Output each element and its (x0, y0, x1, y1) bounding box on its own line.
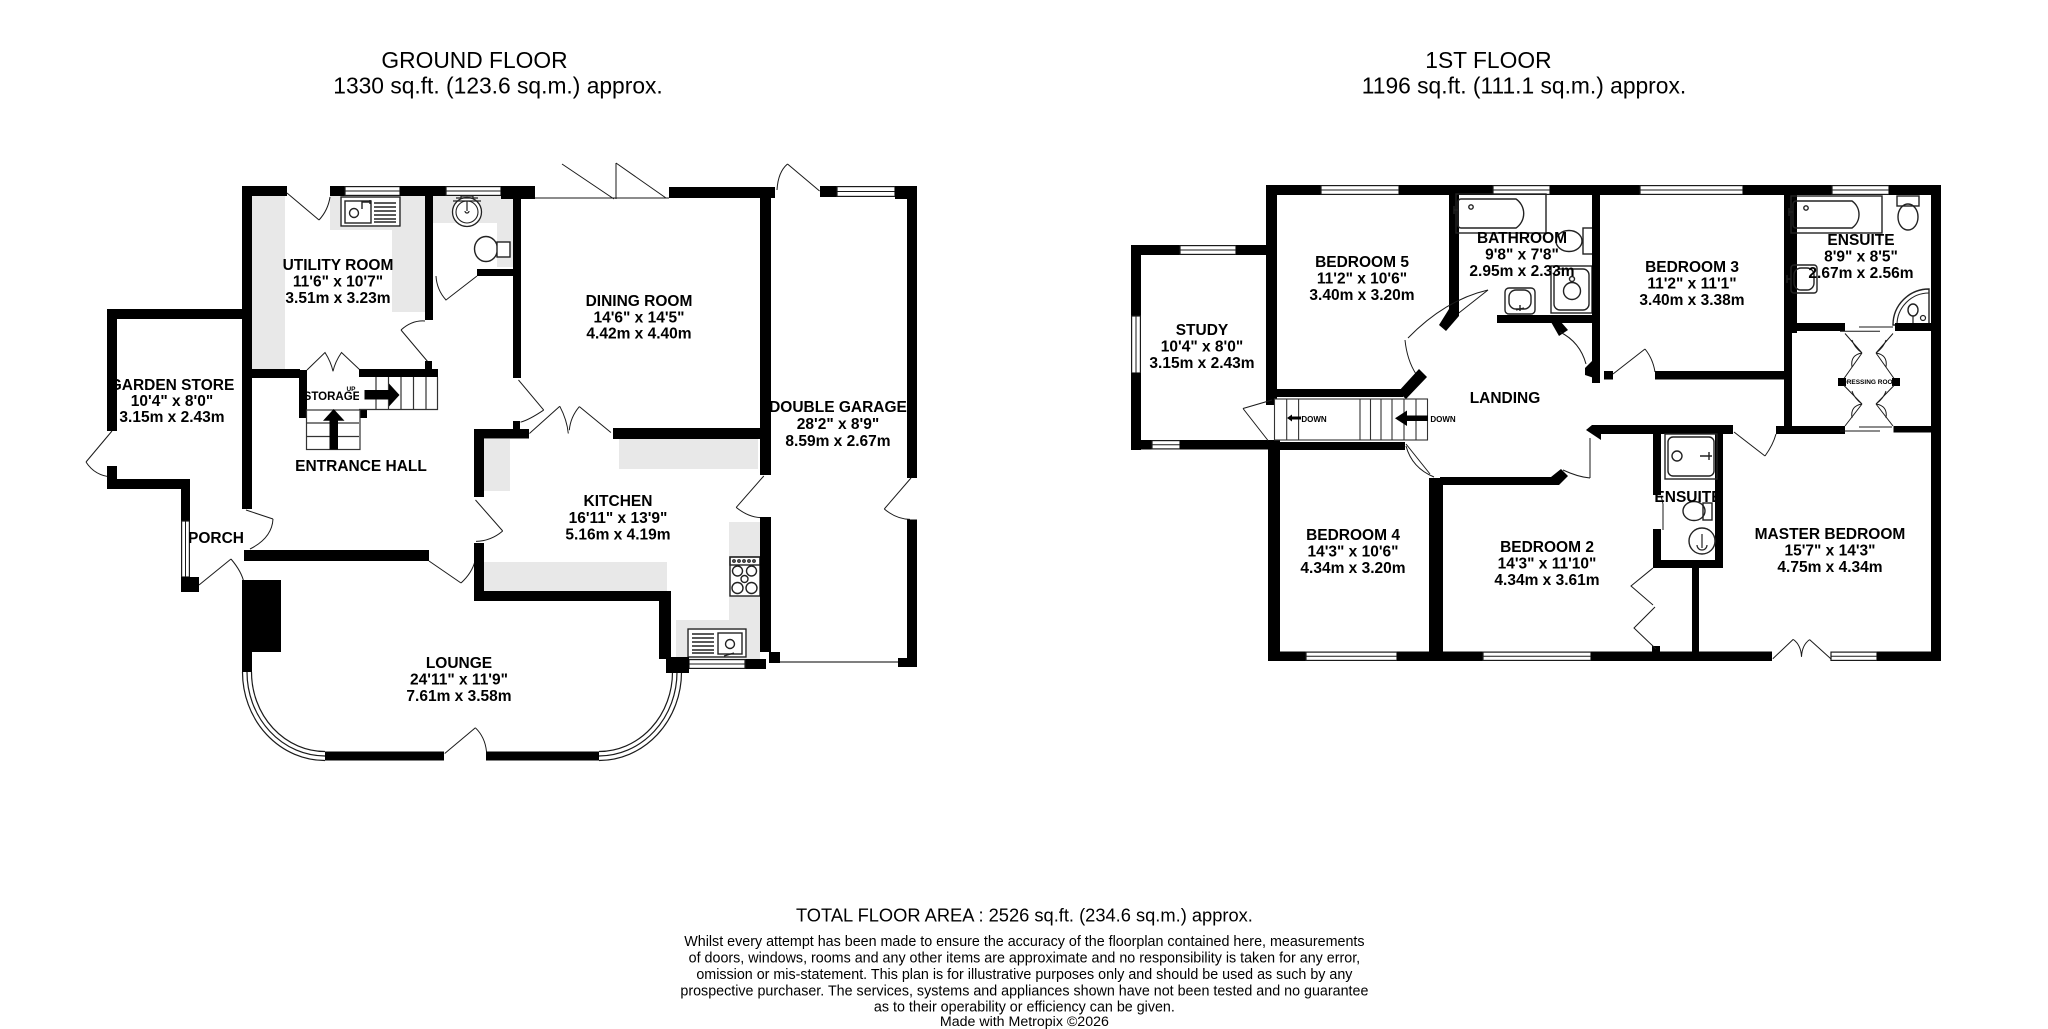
svg-text:BATHROOM: BATHROOM (1477, 230, 1567, 247)
svg-text:of doors, windows, rooms and a: of doors, windows, rooms and any other i… (689, 951, 1361, 967)
svg-text:4.34m x 3.20m: 4.34m x 3.20m (1300, 560, 1405, 577)
svg-text:3.40m x 3.20m: 3.40m x 3.20m (1309, 287, 1414, 304)
svg-text:10'4" x 8'0": 10'4" x 8'0" (131, 393, 213, 410)
svg-text:KITCHEN: KITCHEN (584, 493, 653, 510)
svg-text:3.15m x 2.43m: 3.15m x 2.43m (119, 409, 224, 426)
svg-text:8.59m x 2.67m: 8.59m x 2.67m (785, 433, 890, 450)
svg-text:GARDEN STORE: GARDEN STORE (110, 377, 235, 394)
svg-text:4.75m x 4.34m: 4.75m x 4.34m (1777, 559, 1882, 576)
svg-text:4.34m x 3.61m: 4.34m x 3.61m (1494, 572, 1599, 589)
svg-text:ENTRANCE HALL: ENTRANCE HALL (295, 458, 427, 475)
svg-text:prospective purchaser. The ser: prospective purchaser. The services, sys… (680, 983, 1368, 999)
svg-text:16'11" x 13'9": 16'11" x 13'9" (569, 510, 668, 527)
svg-text:14'3" x 11'10": 14'3" x 11'10" (1498, 556, 1597, 573)
svg-text:11'2" x 10'6": 11'2" x 10'6" (1317, 271, 1407, 288)
svg-text:DRESSING ROOM: DRESSING ROOM (1842, 379, 1898, 386)
svg-text:8'9" x 8'5": 8'9" x 8'5" (1824, 249, 1898, 266)
svg-text:DOWN: DOWN (1301, 415, 1327, 424)
svg-text:ENSUITE: ENSUITE (1654, 489, 1721, 506)
svg-text:14'3" x 10'6": 14'3" x 10'6" (1307, 544, 1398, 561)
svg-text:ENSUITE: ENSUITE (1827, 232, 1894, 249)
svg-text:28'2" x 8'9": 28'2" x 8'9" (797, 416, 879, 433)
svg-text:BEDROOM 5: BEDROOM 5 (1315, 254, 1409, 271)
svg-text:PORCH: PORCH (188, 530, 244, 547)
svg-text:1330 sq.ft. (123.6 sq.m.) appr: 1330 sq.ft. (123.6 sq.m.) approx. (333, 72, 662, 98)
svg-text:LANDING: LANDING (1470, 390, 1541, 407)
svg-text:15'7" x 14'3": 15'7" x 14'3" (1784, 543, 1875, 560)
svg-text:2.67m x 2.56m: 2.67m x 2.56m (1808, 265, 1913, 282)
svg-text:Whilst every attempt has been: Whilst every attempt has been made to en… (684, 934, 1364, 950)
svg-text:LOUNGE: LOUNGE (426, 655, 492, 672)
svg-text:Made with Metropix ©2026: Made with Metropix ©2026 (940, 1014, 1109, 1029)
svg-text:GROUND FLOOR: GROUND FLOOR (381, 47, 567, 73)
svg-text:3.15m x 2.43m: 3.15m x 2.43m (1149, 355, 1254, 372)
svg-text:7.61m x 3.58m: 7.61m x 3.58m (406, 688, 511, 705)
svg-text:UP: UP (346, 386, 356, 393)
svg-text:BEDROOM 4: BEDROOM 4 (1306, 527, 1400, 544)
svg-text:1ST FLOOR: 1ST FLOOR (1425, 47, 1551, 73)
svg-text:3.51m x 3.23m: 3.51m x 3.23m (285, 290, 390, 307)
svg-text:9'8" x 7'8": 9'8" x 7'8" (1485, 247, 1559, 264)
svg-text:11'6" x 10'7": 11'6" x 10'7" (293, 274, 383, 291)
svg-text:14'6" x 14'5": 14'6" x 14'5" (593, 309, 684, 326)
svg-text:STUDY: STUDY (1176, 322, 1229, 339)
svg-text:DOWN: DOWN (1430, 415, 1456, 424)
svg-text:MASTER BEDROOM: MASTER BEDROOM (1755, 526, 1906, 543)
svg-text:UTILITY ROOM: UTILITY ROOM (283, 257, 394, 274)
svg-text:5.16m x 4.19m: 5.16m x 4.19m (565, 527, 670, 544)
svg-text:TOTAL FLOOR AREA : 2526 sq.ft.: TOTAL FLOOR AREA : 2526 sq.ft. (234.6 sq… (796, 905, 1253, 926)
svg-text:2.95m x 2.33m: 2.95m x 2.33m (1469, 263, 1574, 280)
svg-text:DOUBLE GARAGE: DOUBLE GARAGE (769, 399, 907, 416)
svg-text:4.42m x 4.40m: 4.42m x 4.40m (586, 326, 691, 343)
svg-text:BEDROOM 2: BEDROOM 2 (1500, 539, 1594, 556)
svg-text:11'2" x 11'1": 11'2" x 11'1" (1647, 276, 1736, 293)
svg-text:BEDROOM 3: BEDROOM 3 (1645, 259, 1739, 276)
svg-text:1196 sq.ft. (111.1 sq.m.) appr: 1196 sq.ft. (111.1 sq.m.) approx. (1362, 72, 1686, 98)
svg-text:24'11" x 11'9": 24'11" x 11'9" (410, 672, 508, 689)
svg-text:3.40m x 3.38m: 3.40m x 3.38m (1639, 292, 1744, 309)
svg-text:omission or mis-statement. Thi: omission or mis-statement. This plan is … (696, 967, 1353, 983)
svg-text:DINING ROOM: DINING ROOM (586, 293, 693, 310)
svg-text:10'4" x 8'0": 10'4" x 8'0" (1161, 339, 1243, 356)
